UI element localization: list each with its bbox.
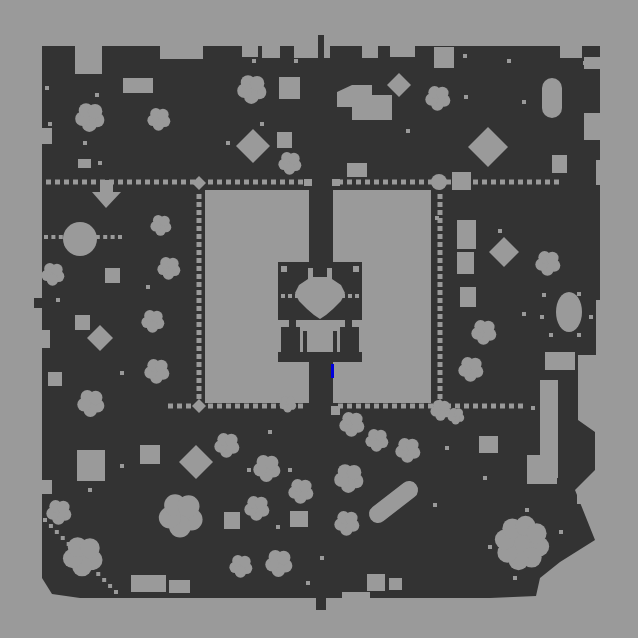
screen: { "map": { "width": 638, "height": 638, …: [0, 0, 638, 638]
map-canvas[interactable]: [0, 0, 638, 638]
occupancy-map: [0, 0, 638, 638]
